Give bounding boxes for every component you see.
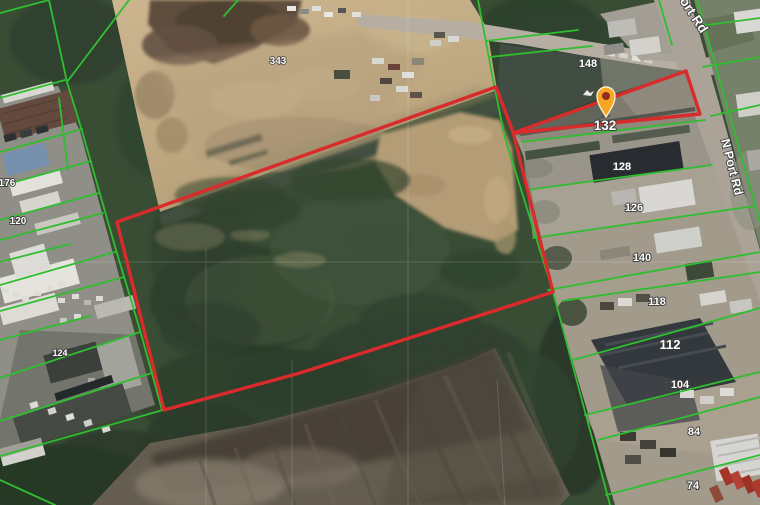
svg-text:124: 124 [52, 348, 67, 358]
svg-text:132: 132 [594, 118, 617, 133]
svg-text:176: 176 [0, 178, 16, 189]
svg-text:343: 343 [270, 56, 287, 67]
svg-text:148: 148 [579, 58, 597, 70]
svg-text:128: 128 [613, 161, 631, 173]
svg-text:118: 118 [648, 296, 666, 308]
svg-text:104: 104 [671, 379, 690, 391]
svg-text:120: 120 [10, 216, 27, 227]
svg-text:74: 74 [687, 480, 700, 492]
svg-text:112: 112 [660, 337, 681, 352]
svg-text:126: 126 [625, 202, 643, 214]
svg-text:84: 84 [688, 426, 701, 438]
svg-text:140: 140 [633, 252, 651, 264]
